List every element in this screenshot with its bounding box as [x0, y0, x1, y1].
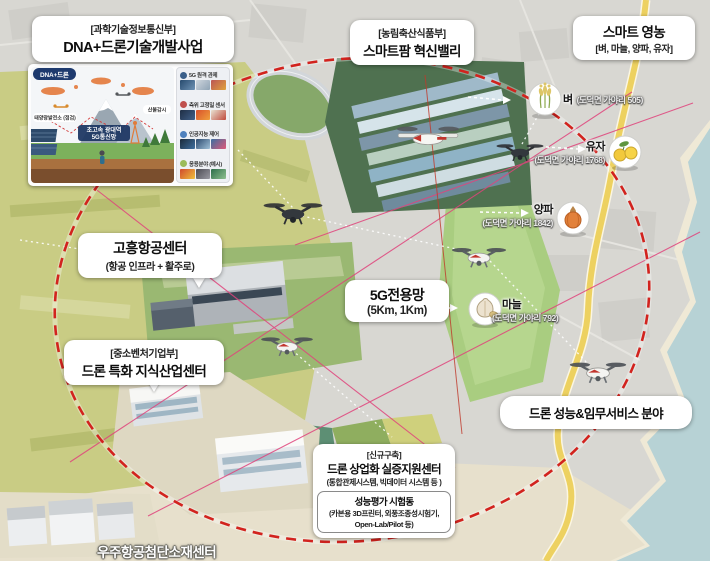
- performance-test-section: 성능평가 시험동 (카본용 3D프린터, 외풍조종성시험기, Open-Lab/…: [317, 491, 451, 533]
- thumbnails: [180, 80, 226, 90]
- inset-badge: DNA+드론: [33, 68, 76, 80]
- dna-drone-infographic: DNA+드론: [28, 64, 233, 186]
- msit-label-box: [과학기술정보통신부] DNA+드론기술개발사업: [32, 16, 234, 62]
- aviation-center-label-box: 고흥항공센터 (항공 인프라 + 활주로): [78, 233, 222, 278]
- service-label-box: 드론 성능&임무서비스 분야: [500, 396, 692, 429]
- garlic-label: 마늘 (도덕면 가야리 792): [492, 296, 558, 324]
- rice-label: 벼 (도덕면 가야리 505): [563, 91, 643, 107]
- sidebar-item-5g-control: 5G 원격 관제: [180, 71, 226, 90]
- sidebar-item-sensors: 측위 고정밀 센서: [180, 101, 226, 120]
- scene-label-right: 산불감시: [143, 105, 171, 114]
- onion-label: 양파 (도덕면 가야리 1842): [405, 201, 553, 229]
- field-patch-yellow: [382, 414, 442, 448]
- 5g-icon: [180, 72, 187, 79]
- inset-scene: 초고속 광대역 5G통신망 태양광발전소 (점검) 산불감시: [31, 67, 174, 183]
- commercialization-label-box: [신규구축] 드론 상업화 실증지원센터 (통합관제시스템, 빅데이터 시스템 …: [313, 444, 455, 538]
- svg-text:초고속 광대역: 초고속 광대역: [87, 126, 122, 134]
- scene-center-badge: 초고속 광대역 5G통신망: [78, 125, 130, 141]
- bubble-tail: [193, 278, 205, 288]
- citron-label: 유자 (도덕면 가야리 1768): [457, 138, 605, 166]
- knowledge-center-label-box: [중소벤처기업부] 드론 특화 지식산업센터: [64, 340, 224, 385]
- thumbnails: [180, 169, 226, 179]
- svg-text:5G통신망: 5G통신망: [92, 133, 117, 141]
- smart-farming-label-box: 스마트 영농 [벼, 마늘, 양파, 유자]: [573, 16, 695, 60]
- inset-sidebar: 5G 원격 관제 측위 고정밀 센서 인공지능 제어: [176, 67, 230, 183]
- scene-label-left: 태양광발전소 (점검): [33, 113, 77, 122]
- svg-text:산불감시: 산불감시: [148, 107, 167, 114]
- sidebar-item-ai: 인공지능 제어: [180, 130, 226, 149]
- thumbnails: [180, 139, 226, 149]
- sensor-icon: [180, 101, 187, 108]
- thumbnails: [180, 110, 226, 120]
- materials-center-label: 우주항공첨단소재센터: [97, 541, 216, 561]
- ai-icon: [180, 131, 187, 138]
- solar-panels: [31, 129, 57, 155]
- network-label-box: 5G전용망 (5Km, 1Km): [345, 280, 449, 322]
- mafra-label-box: [농림축산식품부] 스마트팜 혁신밸리: [350, 20, 474, 65]
- svg-text:태양광발전소 (점검): 태양광발전소 (점검): [34, 115, 76, 122]
- sidebar-item-applications: 응용분야 (예시): [180, 160, 226, 179]
- drone-cluster-map: DNA+드론: [0, 0, 710, 561]
- pilot-person: [99, 150, 104, 164]
- applications-icon: [180, 160, 187, 167]
